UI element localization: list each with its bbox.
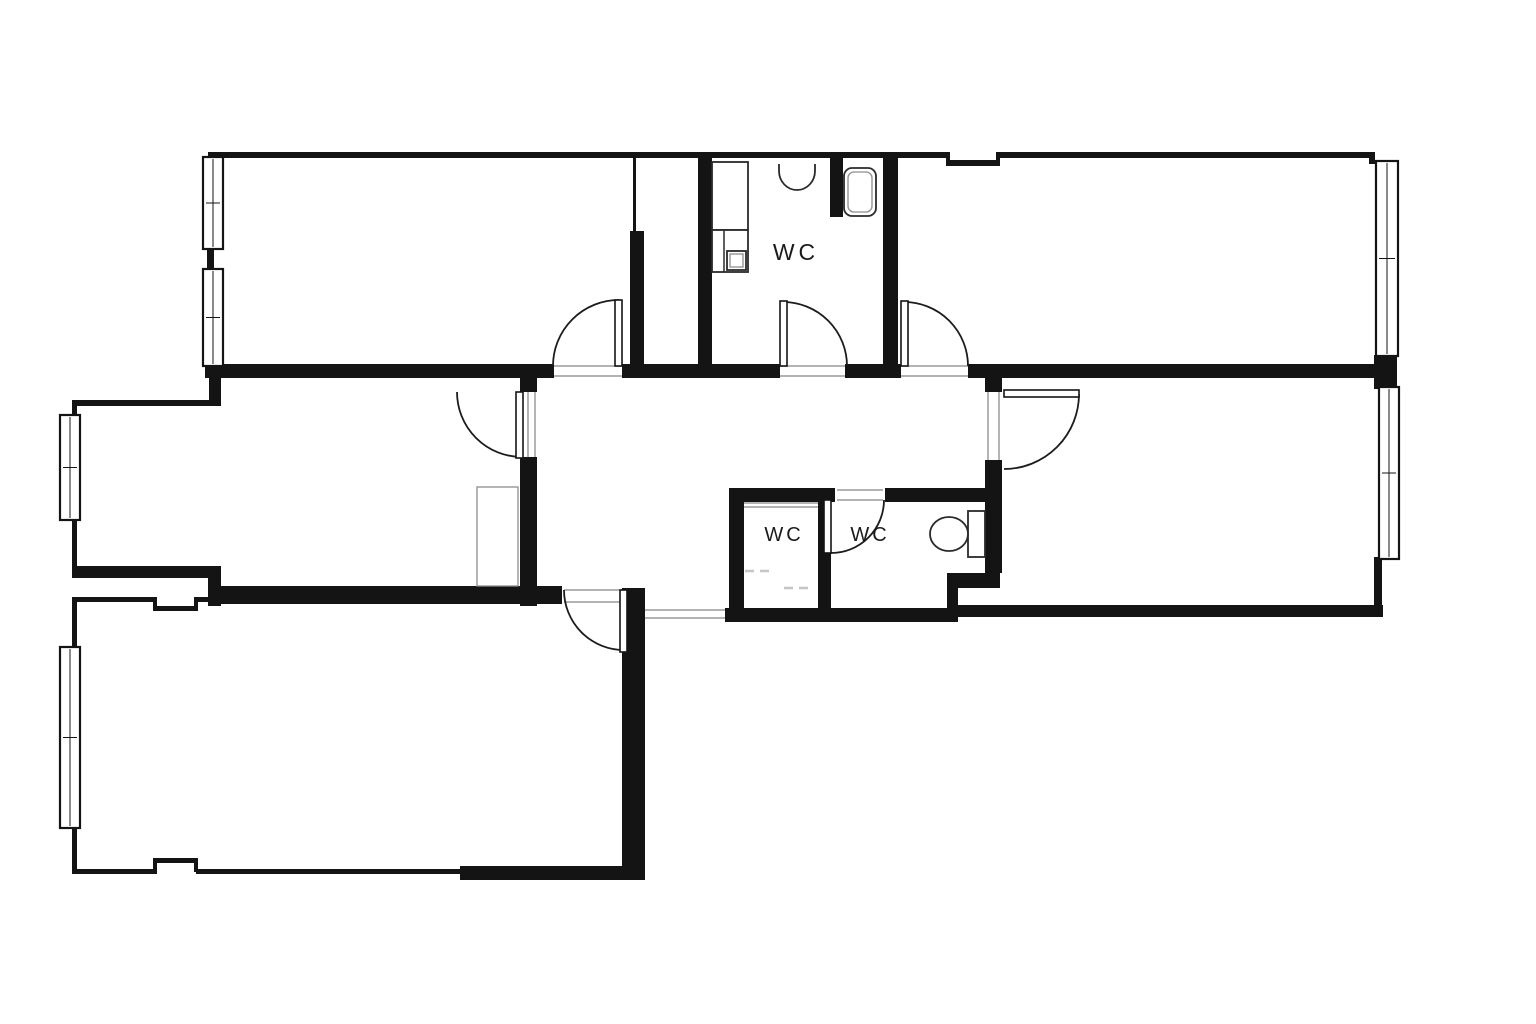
exterior-wall bbox=[72, 869, 157, 874]
interior-wall bbox=[985, 460, 1002, 573]
door-leaf bbox=[516, 392, 523, 458]
floor-plan-page: WCWCWC bbox=[0, 0, 1536, 1024]
interior-wall bbox=[520, 364, 537, 392]
wc-room-label: WC bbox=[764, 524, 803, 546]
toilet-bowl-icon bbox=[930, 517, 968, 551]
exterior-wall bbox=[196, 869, 460, 874]
interior-wall bbox=[1374, 355, 1397, 389]
interior-wall bbox=[698, 152, 712, 364]
interior-wall bbox=[947, 573, 1000, 588]
door-leaf bbox=[780, 301, 787, 366]
exterior-wall bbox=[1369, 152, 1375, 164]
interior-wall bbox=[729, 488, 744, 622]
interior-wall bbox=[845, 364, 901, 378]
exterior-wall bbox=[633, 158, 636, 233]
door-leaf bbox=[901, 301, 908, 366]
exterior-wall bbox=[72, 519, 77, 568]
interior-wall bbox=[985, 364, 1002, 392]
wc-sink-unit-inner bbox=[730, 254, 743, 267]
wardrobe bbox=[477, 487, 518, 586]
exterior-wall bbox=[196, 597, 216, 602]
door-leaf bbox=[620, 590, 627, 652]
exterior-wall bbox=[72, 597, 77, 649]
exterior-wall bbox=[153, 606, 198, 611]
interior-wall bbox=[968, 364, 1377, 378]
interior-wall bbox=[213, 364, 554, 378]
door-leaf bbox=[615, 300, 622, 366]
interior-wall bbox=[72, 566, 208, 578]
interior-wall bbox=[520, 457, 537, 606]
exterior-wall bbox=[958, 605, 1383, 617]
door-leaf bbox=[1004, 390, 1079, 397]
exterior-wall bbox=[73, 400, 216, 406]
exterior-wall bbox=[153, 858, 157, 872]
interior-wall bbox=[725, 608, 958, 622]
interior-wall bbox=[216, 586, 562, 604]
interior-wall bbox=[947, 588, 958, 610]
wc-room-label: WC bbox=[773, 239, 819, 265]
door-leaf bbox=[824, 500, 831, 553]
toilet-icon-inner bbox=[848, 172, 872, 212]
exterior-wall bbox=[948, 160, 998, 166]
floor-plan-svg: WCWCWC bbox=[0, 0, 1536, 1024]
wc-cabinet bbox=[712, 162, 748, 230]
toilet-tank-icon bbox=[968, 511, 985, 557]
exterior-wall bbox=[72, 597, 157, 602]
exterior-wall bbox=[72, 826, 77, 873]
wc-room-label: WC bbox=[850, 524, 889, 546]
exterior-wall bbox=[998, 152, 1373, 158]
exterior-wall bbox=[1374, 557, 1382, 613]
interior-wall bbox=[460, 866, 645, 880]
exterior-wall bbox=[213, 152, 948, 158]
interior-wall bbox=[622, 364, 780, 378]
interior-wall bbox=[830, 152, 843, 217]
interior-wall bbox=[729, 488, 835, 502]
interior-wall bbox=[885, 488, 1002, 502]
exterior-wall bbox=[153, 858, 198, 863]
interior-wall bbox=[883, 152, 898, 364]
interior-wall bbox=[630, 231, 644, 364]
